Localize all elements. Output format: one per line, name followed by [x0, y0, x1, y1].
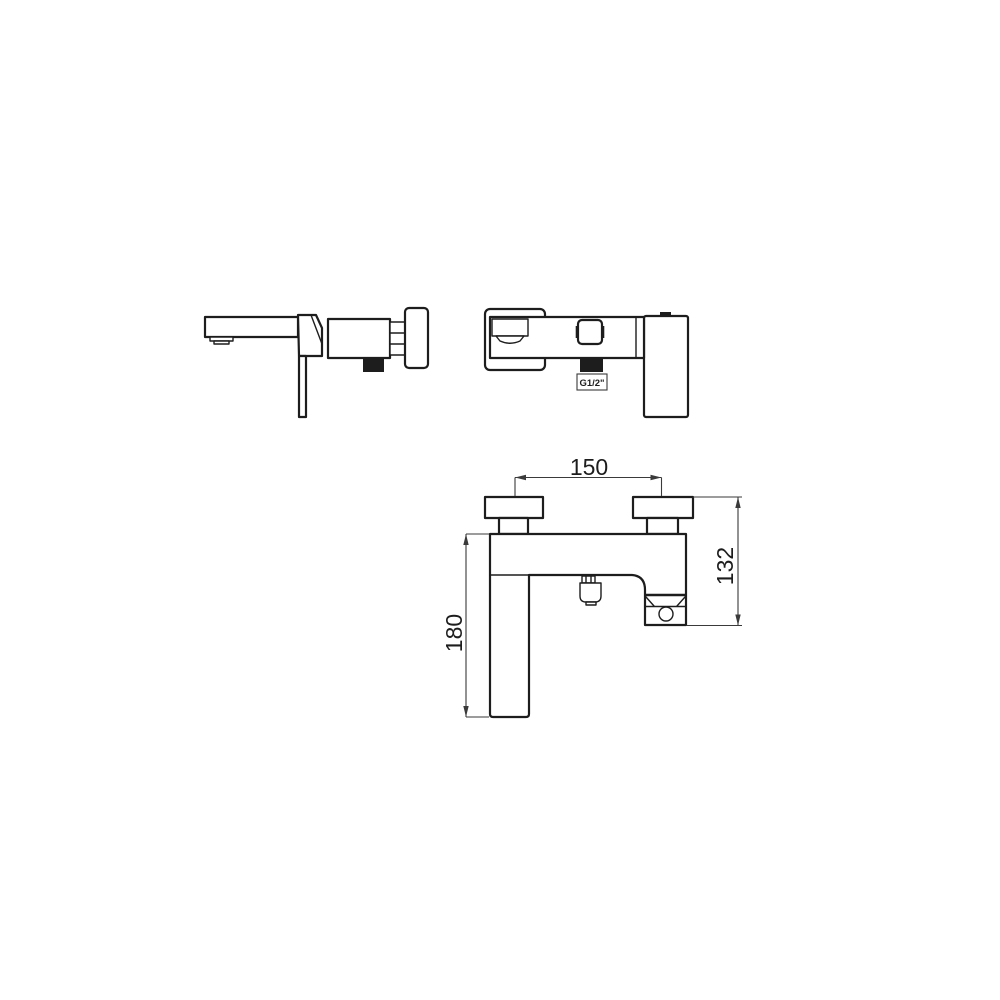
- aerator-tip: [214, 341, 229, 344]
- mount-stem-right: [647, 518, 678, 534]
- outlet-port-side: [363, 358, 384, 372]
- mount-flange-right: [633, 497, 693, 518]
- diverter-stem: [582, 576, 595, 583]
- dimensioned-front-view: 150 132 180: [441, 454, 742, 717]
- wall-flange-side: [405, 308, 428, 368]
- dim-drop-arrow-top: [463, 534, 468, 545]
- side-view: [205, 308, 428, 417]
- lever-grip-side: [299, 356, 306, 417]
- technical-drawing-canvas: G1/2": [0, 0, 1000, 1000]
- diverter-knob-body: [580, 583, 601, 602]
- mount-flange-left: [485, 497, 543, 518]
- bath-mixer-drawing: G1/2": [0, 0, 1000, 1000]
- diverter-knob-front: [578, 320, 602, 344]
- thread-label: G1/2": [577, 374, 607, 390]
- dim-drop-arrow-bottom: [463, 706, 468, 717]
- valve-body-side: [328, 319, 390, 358]
- dim-height-arrow-bottom: [735, 615, 740, 626]
- dimension-height: 132: [687, 497, 742, 626]
- handle-index-mark: [660, 312, 671, 316]
- dim-span-arrow-left: [515, 475, 526, 480]
- dim-height-arrow-top: [735, 497, 740, 508]
- diverter-pull-knob: [580, 576, 601, 605]
- spout-opening-front: [492, 319, 528, 336]
- wall-connector-side: [390, 322, 405, 355]
- dim-drop-text: 180: [441, 614, 467, 652]
- dim-span-arrow-right: [651, 475, 662, 480]
- dim-height-text: 132: [712, 547, 738, 585]
- thread-label-text: G1/2": [579, 378, 604, 389]
- mount-stem-left: [499, 518, 528, 534]
- handle-front: [644, 316, 688, 417]
- diverter-knob-tip: [586, 602, 596, 605]
- mixer-body-outline: [490, 534, 686, 717]
- dimension-span: 150: [515, 454, 662, 496]
- spout-side: [205, 317, 298, 337]
- dimension-drop: 180: [441, 534, 489, 717]
- shower-outlet-port: [580, 358, 603, 372]
- front-view: G1/2": [485, 309, 688, 417]
- dim-span-text: 150: [570, 454, 608, 480]
